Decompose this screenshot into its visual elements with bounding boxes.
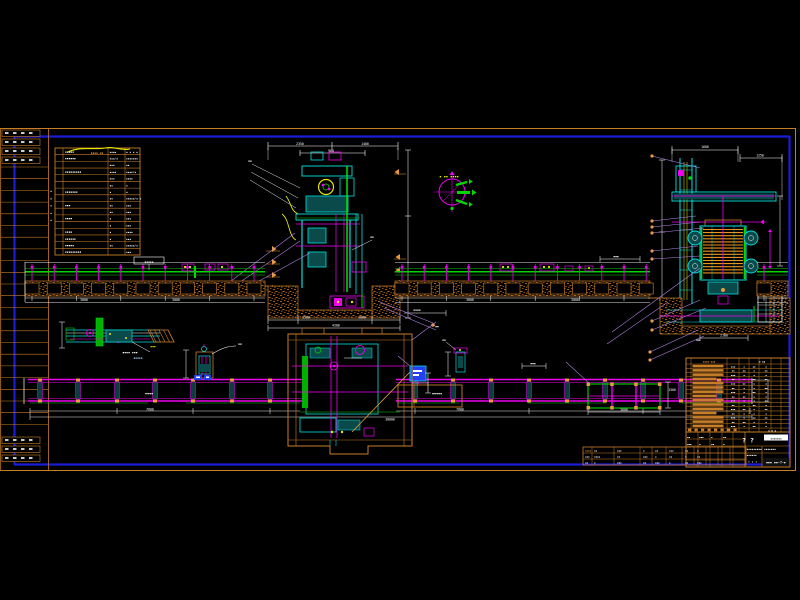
cad-circle — [341, 431, 343, 433]
joint — [679, 400, 683, 403]
plan-post — [230, 382, 235, 399]
plan-post — [191, 382, 196, 399]
bom-name-bar — [693, 416, 724, 419]
bom-name-bar — [693, 365, 724, 368]
legend-cell: ▪▪▪ — [110, 177, 115, 181]
cad-circle — [328, 188, 331, 191]
cad-rect — [540, 264, 554, 271]
titleblock-mark: ? ? — [742, 437, 754, 445]
bom-cell: ▪▪ — [764, 400, 768, 403]
revision-cell: ▪▪ — [685, 462, 689, 465]
footing — [69, 283, 83, 294]
cad-circle — [688, 176, 692, 180]
note-label: ▪▪ — [435, 325, 439, 329]
legend-cell: ▪▪▪▪▪ — [65, 243, 74, 247]
bom-cell: ▪ — [765, 382, 767, 385]
bom-cell: ▪ — [753, 370, 755, 373]
bom-cell: ▪▪ — [731, 421, 735, 424]
bom-cell: ▪ — [753, 387, 755, 390]
cad-circle — [333, 365, 336, 368]
cad-fill — [458, 356, 463, 368]
footing — [25, 283, 39, 294]
revision-cell: ▪▪▪ — [617, 450, 622, 453]
bom-cell: ▪▪ — [752, 378, 756, 381]
bom-cell: ▪▪ — [731, 412, 735, 415]
conveyor-plan-view — [24, 356, 770, 420]
leader — [652, 256, 700, 259]
bom-cell: ▪▪ — [731, 395, 735, 398]
footing — [114, 283, 128, 294]
post-cap — [231, 266, 234, 269]
bom-cell: ▪ — [753, 382, 755, 385]
detail-views — [59, 318, 467, 380]
footing — [639, 283, 653, 294]
bom-cell: ▪▪▪ — [731, 408, 736, 411]
legend-cell: ▪▪▪/▪ — [110, 157, 119, 161]
bom-footer-mark — [695, 429, 698, 432]
footing — [203, 283, 217, 294]
zone-tick — [29, 150, 33, 152]
plan-left-label: ▪▪▪▪ — [145, 391, 153, 395]
zone-tick — [5, 132, 9, 134]
leader — [652, 216, 696, 221]
wheel — [319, 180, 334, 195]
legend-cell: ▪ — [110, 217, 112, 221]
corner-plate — [610, 406, 614, 410]
joint — [603, 400, 607, 403]
cad-drawing-canvas: ▪▪▪▪▪▪▪▪▪▪ ▪ ▪ ▪▪▪▪▪▪▪▪▪▪/▪▪▪▪▪▪▪▪▪▪▪▪▪▪… — [0, 0, 800, 600]
joint — [679, 379, 683, 382]
bom-cell: ▪ — [743, 365, 745, 368]
note-label: ▪▪▪▪ — [413, 308, 421, 312]
note-label: ▪▪ — [442, 338, 446, 342]
cad-circle — [450, 207, 453, 210]
bom-name-bar — [693, 373, 724, 376]
joint — [268, 379, 272, 382]
bom-cell: ▪▪ — [731, 404, 735, 407]
cad-rect — [583, 447, 746, 465]
side-lobe — [688, 231, 702, 245]
section-line — [352, 372, 410, 432]
legend-cell: ▪▪ — [110, 197, 114, 201]
legend-header-text: ▪▪▪▪ ▪▪ — [91, 151, 104, 155]
bom-name-bar — [693, 369, 724, 372]
bom-cell: ▪▪ — [731, 378, 735, 381]
titleblock-number: ▪▪▪ ▪▪-?-▪ — [766, 460, 786, 464]
legend-cell: ▪▪▪▪ — [110, 150, 117, 154]
legend-cell: ▪▪▪▪ — [65, 230, 72, 234]
legend-cell: ▪▪▪▪▪ — [65, 150, 74, 154]
post-cap — [401, 266, 404, 269]
corner-plate — [587, 406, 591, 410]
bom-cell: ▪▪ — [742, 370, 746, 373]
plan-post — [115, 382, 120, 399]
revision-cell: ▪▪▪ — [669, 450, 674, 453]
joint — [565, 379, 569, 382]
joint — [230, 400, 234, 403]
legend-cell: ▪ ▪ ▪ ▪ — [126, 150, 138, 154]
post-cap — [623, 266, 626, 269]
legend-cell: ▪▪▪▪▪▪▪▪▪ — [65, 250, 81, 254]
cad-circle — [548, 266, 550, 268]
post-cap — [534, 266, 537, 269]
leader — [652, 222, 700, 227]
cad-circle — [202, 347, 207, 352]
bom-cell: ▪▪ — [764, 408, 768, 411]
post-cap — [578, 266, 581, 269]
cad-circle — [337, 301, 339, 303]
corner-plate — [610, 383, 614, 387]
zone-tick — [29, 457, 33, 459]
legend-cell: ▪▪▪▪▪▪▪ — [65, 190, 78, 194]
footing — [573, 283, 587, 294]
dim-label: 3000 — [466, 298, 474, 302]
post-cap — [208, 266, 211, 269]
bom-cell: ▪▪ — [742, 395, 746, 398]
zone-tick — [29, 159, 33, 161]
legend-cell: ▪▪▪ — [126, 250, 131, 254]
cad-circle — [351, 301, 353, 303]
bom-cell: ▪▪▪ — [731, 391, 736, 394]
dim-label: 2350 — [296, 142, 304, 146]
cad-circle — [109, 333, 111, 335]
bom-name-bar — [693, 408, 724, 411]
legend-side-mark: ▪ — [50, 196, 52, 200]
legend-side-mark: ▪ — [50, 211, 52, 215]
bom-name-bar — [693, 378, 717, 381]
zone-tick — [13, 448, 17, 450]
note-label: ▪▪ — [696, 338, 700, 342]
bucket — [308, 252, 326, 267]
revision-cell: ▪▪ — [685, 450, 689, 453]
legend-cell: ▪▪▪▪▪/▪ — [126, 243, 138, 247]
joint — [153, 400, 157, 403]
bom-cell: ▪ — [765, 425, 767, 428]
bom-cell: ▪▪▪ — [731, 425, 736, 428]
dim-label: 3000 — [80, 298, 88, 302]
zone-tick — [21, 150, 25, 152]
footing — [550, 283, 564, 294]
bom-cell: ▪ — [765, 374, 767, 377]
revision-cell: ▪ — [643, 450, 645, 453]
footing — [180, 283, 194, 294]
bom-cell: ▪ — [743, 374, 745, 377]
zone-tick — [21, 141, 25, 143]
bom-cell: ▪ — [753, 408, 755, 411]
titleblock-line1: ▪▪▪▪▪▪▪▪▪ — [747, 447, 762, 451]
post-cap — [75, 266, 78, 269]
titleblock-footer-left: ▪▪ ▪▪▪ — [689, 463, 699, 466]
plan-post — [451, 382, 456, 399]
footing — [617, 283, 631, 294]
bom-cell: ▪▪ — [764, 378, 768, 381]
zone-tick — [29, 141, 33, 143]
legend-cell: ▪▪▪ — [126, 217, 131, 221]
bom-cell: ▪ — [743, 387, 745, 390]
cad-rect — [352, 262, 366, 272]
footing — [757, 283, 771, 294]
post-cap — [164, 266, 167, 269]
plan-right-label: ▪▪▪▪▪ — [432, 391, 442, 395]
joint — [451, 379, 455, 382]
joint — [641, 400, 645, 403]
bom-cell: ▪▪ — [752, 365, 756, 368]
legend-cell: ▪▪▪ — [126, 223, 131, 227]
joint — [641, 379, 645, 382]
bom-cell: ▪▪ — [764, 370, 768, 373]
post-cap — [253, 266, 256, 269]
bom-cell: ▪▪ — [742, 421, 746, 424]
legend-cell: ▪▪▪▪▪▪▪ — [126, 157, 138, 161]
bom-name-bar — [693, 420, 724, 423]
zone-tick — [21, 132, 25, 134]
plan-post — [565, 382, 570, 399]
plan-post — [38, 382, 43, 399]
joint — [527, 400, 531, 403]
joint — [489, 400, 493, 403]
dim-label: 900 — [328, 149, 334, 153]
marker-triangle — [469, 202, 473, 207]
side-lobe — [744, 259, 758, 273]
revision-cell: ▪▪▪ — [655, 462, 660, 465]
note-label: ▪▪ — [238, 342, 242, 346]
dim-label: 2100 — [720, 334, 728, 338]
bom-cell: ▪ — [765, 391, 767, 394]
bom-cell: ▪ — [743, 391, 745, 394]
dim-label: 1250 — [756, 154, 764, 158]
cad-fill — [106, 330, 132, 342]
joint — [527, 379, 531, 382]
bom-cell: ▪▪ — [731, 370, 735, 373]
cad-fill — [206, 377, 209, 379]
footing — [439, 283, 453, 294]
hatch-area — [395, 281, 650, 296]
bom-footer-mark — [708, 429, 711, 432]
plan-post — [268, 382, 273, 399]
titleblock-cell: ▪ — [699, 443, 701, 446]
zone-tick — [29, 132, 33, 134]
leader — [252, 164, 300, 188]
post-cap — [490, 266, 493, 269]
post-cap — [601, 266, 604, 269]
cad-fill — [310, 348, 330, 358]
titleblock-cell: ▪▪ — [711, 443, 715, 446]
bom-cell: ▪▪ — [742, 408, 746, 411]
legend-side-mark: ▪ — [50, 218, 52, 222]
legend-table: ▪▪▪▪▪▪▪▪▪▪ ▪ ▪ ▪▪▪▪▪▪▪▪▪▪/▪▪▪▪▪▪▪▪▪▪▪▪▪▪… — [50, 148, 141, 255]
post-cap — [31, 266, 34, 269]
zone-tick — [5, 141, 9, 143]
joint — [603, 379, 607, 382]
revision-cell: ▪▪ — [643, 462, 647, 465]
plan-post — [527, 382, 532, 399]
legend-cell: ▪▪▪▪▪▪ — [65, 237, 76, 241]
post-cap — [97, 266, 100, 269]
marker-triangle — [472, 190, 477, 196]
bom-cell: ▪ — [765, 421, 767, 424]
footing — [595, 283, 609, 294]
side-lobe — [744, 231, 758, 245]
legend-cell: ▪ — [110, 223, 112, 227]
dim-label: 3000 — [571, 298, 579, 302]
cad-fill — [413, 370, 422, 372]
legend-cell: ▪ — [110, 190, 112, 194]
dim-label: 1500 — [668, 388, 676, 392]
zone-tick — [5, 159, 9, 161]
revision-cell: ▪▪ — [617, 456, 621, 459]
joint — [565, 400, 569, 403]
titleblock-stamp: ▪▪▪▪▪▪▪ — [770, 436, 782, 440]
legend-cell: ▪▪▪▪ — [126, 230, 133, 234]
legend-cell: ▪ — [110, 237, 112, 241]
footing — [47, 283, 61, 294]
joint — [191, 400, 195, 403]
post-cap — [763, 266, 766, 269]
footing — [506, 283, 520, 294]
bom-footer-mark — [721, 429, 724, 432]
bom-name-bar — [693, 382, 724, 385]
post-cap — [467, 266, 470, 269]
bom-cell: ▪ — [743, 404, 745, 407]
post-cap — [423, 266, 426, 269]
zone-tick — [13, 141, 17, 143]
revision-cell: ▪▪ — [594, 450, 598, 453]
bom-cell: ▪ — [743, 412, 745, 415]
dim-label: 3000 — [172, 298, 180, 302]
cad-circle — [502, 266, 504, 268]
legend-cell: ▪ — [126, 190, 128, 194]
legend-cell: ▪▪▪▪▪/▪ ▪ — [126, 197, 141, 201]
footing — [136, 283, 150, 294]
revision-cell: ▪▪ — [669, 456, 673, 459]
note-label: ▪▪▪ — [613, 255, 619, 259]
revision-cell: ▪▪▪▪ — [594, 456, 601, 459]
corner-plate — [587, 383, 591, 387]
bom-cell: ▪ — [743, 425, 745, 428]
legend-cell: ▪▪▪▪▪▪▪▪▪ — [65, 170, 81, 174]
cad-fill — [96, 318, 103, 346]
revision-strip: ▪▪▪▪▪▪▪▪▪▪▪▪▪▪▪▪▪▪▪▪▪▪▪▪▪▪▪▪▪▪▪▪▪▪▪▪▪▪▪▪… — [583, 447, 746, 465]
cad-circle — [459, 349, 461, 351]
bom-footer-mark — [688, 429, 691, 432]
titleblock-row3: ? ? ? — [748, 460, 757, 464]
zone-tick — [29, 439, 33, 441]
cad-fill — [196, 377, 200, 379]
cad-fill — [674, 194, 774, 200]
cad-rect — [362, 328, 382, 334]
bom-name-bar — [693, 395, 717, 398]
legend-cell: ▪▪ — [126, 163, 130, 167]
bom-cell: ▪▪ — [752, 417, 756, 420]
dim-label: 30000 — [385, 418, 395, 422]
marker-triangle — [760, 220, 764, 225]
cad-rect — [718, 296, 728, 304]
leader — [384, 308, 436, 330]
leader — [446, 342, 456, 350]
legend-cell: ▪▪▪ — [110, 163, 115, 167]
detail-a-tag: ▪▪▪ — [150, 345, 156, 349]
bom-cell: ▪▪ — [752, 404, 756, 407]
legend-cell: ▪▪▪ — [126, 237, 131, 241]
joint — [115, 400, 119, 403]
joint — [76, 400, 80, 403]
legend-side-mark: ▪ — [50, 189, 52, 193]
bom-cell: ▪▪▪ — [731, 374, 736, 377]
cad-fill — [302, 356, 308, 408]
titleblock-cell: ▪ — [711, 436, 713, 439]
cad-rect — [302, 166, 352, 176]
plan-post — [679, 382, 684, 399]
dim-label: 1600 — [701, 145, 709, 149]
post-cap — [445, 266, 448, 269]
cad-path — [282, 214, 296, 240]
leader — [231, 233, 295, 281]
footing — [225, 283, 239, 294]
cad-rect — [500, 264, 512, 271]
bom-footer-mark — [727, 429, 730, 432]
plan-post — [489, 382, 494, 399]
leader — [566, 362, 590, 384]
cad-circle — [588, 267, 590, 269]
bom-name-bar — [693, 403, 724, 406]
bom-cell: ▪ — [765, 395, 767, 398]
small-frame-plan — [566, 362, 671, 415]
bom-cell: ▪▪▪ — [731, 382, 736, 385]
bom-cell: ▪▪▪ — [731, 417, 736, 420]
bom-cell: ▪▪▪ — [731, 365, 736, 368]
zone-tick — [5, 457, 9, 459]
footing — [247, 283, 261, 294]
joint — [38, 400, 42, 403]
bom-header-right: ▪ ▪▪ — [759, 361, 766, 364]
zone-tick — [5, 448, 9, 450]
note-label: ▪▪▪ — [530, 362, 536, 366]
legend-side-mark: ▪ — [50, 204, 52, 208]
cad-rect — [306, 196, 348, 212]
cad-circle — [189, 266, 191, 268]
cad-circle — [507, 266, 509, 268]
joint — [38, 379, 42, 382]
plan-post — [413, 382, 418, 399]
bom-footer-mark — [714, 429, 717, 432]
bom-name-bar — [693, 390, 724, 393]
cad-fill — [413, 374, 419, 376]
corner-plate — [634, 406, 638, 410]
joint — [268, 400, 272, 403]
zone-tick — [13, 132, 17, 134]
legend-cell: ▪▪ — [110, 243, 114, 247]
zone-tick — [21, 439, 25, 441]
footing — [395, 283, 409, 294]
legend-cell: ▪▪▪▪ — [65, 217, 72, 221]
footing — [92, 283, 106, 294]
revision-cell: ▪▪▪ — [617, 462, 622, 465]
post-cap — [120, 266, 123, 269]
leader — [212, 346, 236, 354]
footing — [484, 283, 498, 294]
post-cap — [186, 266, 189, 269]
revision-cell: ▪▪▪ — [585, 456, 590, 459]
joint — [489, 379, 493, 382]
dim-label: 4200 — [332, 324, 340, 328]
zone-tick — [5, 150, 9, 152]
post-cap — [142, 266, 145, 269]
revision-cell: ▪ — [685, 456, 687, 459]
cad-fill — [352, 348, 372, 358]
bom-cell: ▪▪ — [752, 391, 756, 394]
marker-triangle — [469, 179, 473, 184]
cad-fill — [678, 170, 684, 176]
